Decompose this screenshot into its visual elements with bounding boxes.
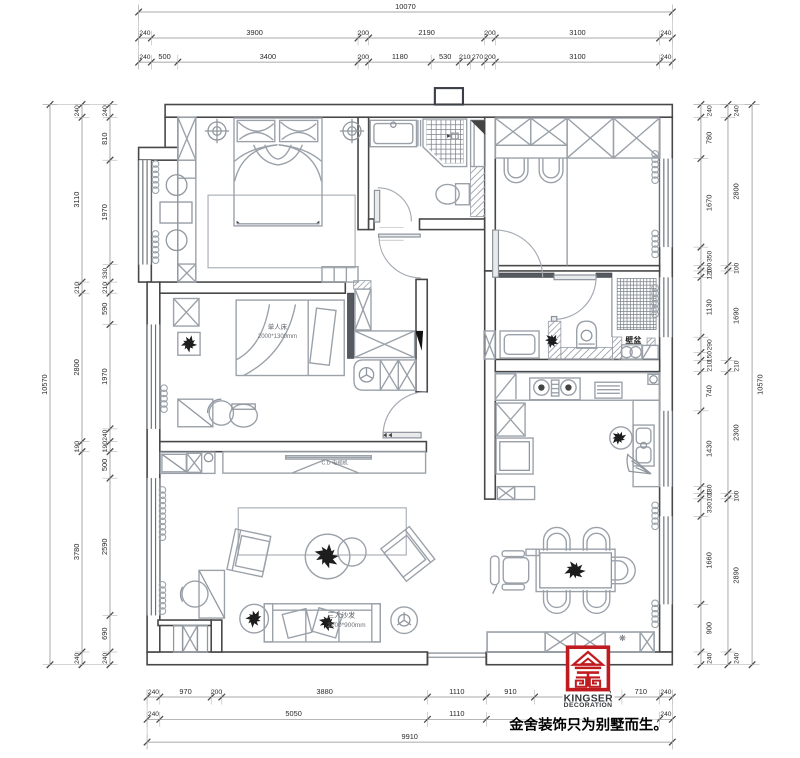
- svg-text:金舍装饰只为别墅而生。: 金舍装饰只为别墅而生。: [508, 716, 667, 734]
- svg-text:200: 200: [484, 30, 495, 37]
- svg-text:200: 200: [358, 30, 369, 37]
- svg-text:810: 810: [100, 133, 109, 145]
- svg-text:190: 190: [102, 441, 109, 452]
- svg-text:210: 210: [706, 360, 713, 371]
- svg-text:2590: 2590: [100, 539, 109, 555]
- svg-text:500: 500: [158, 52, 170, 61]
- svg-text:1670: 1670: [704, 195, 713, 211]
- svg-text:100: 100: [706, 490, 713, 501]
- svg-text:740: 740: [704, 385, 713, 397]
- svg-text:1180: 1180: [392, 52, 408, 61]
- svg-text:200: 200: [358, 54, 369, 61]
- svg-text:590: 590: [100, 303, 109, 315]
- svg-text:2890: 2890: [731, 567, 740, 583]
- svg-text:10070: 10070: [395, 2, 416, 11]
- svg-text:1430: 1430: [704, 441, 713, 457]
- svg-text:530: 530: [439, 52, 451, 61]
- svg-text:1970: 1970: [100, 204, 109, 220]
- svg-text:190: 190: [74, 441, 81, 452]
- svg-text:900: 900: [704, 622, 713, 634]
- svg-text:2200*900mm: 2200*900mm: [327, 622, 365, 629]
- svg-text:270: 270: [472, 54, 483, 61]
- svg-text:3900: 3900: [246, 28, 262, 37]
- svg-text:10570: 10570: [755, 374, 764, 395]
- svg-text:500: 500: [100, 459, 109, 471]
- svg-text:9910: 9910: [401, 732, 417, 741]
- svg-text:240: 240: [660, 54, 671, 61]
- svg-text:710: 710: [635, 687, 647, 696]
- svg-text:1690: 1690: [731, 307, 740, 323]
- svg-text:DECORATION: DECORATION: [564, 702, 613, 709]
- svg-text:’: ’: [609, 690, 611, 699]
- svg-text:240: 240: [102, 653, 109, 664]
- svg-text:3100: 3100: [569, 28, 585, 37]
- svg-text:210: 210: [459, 54, 470, 61]
- svg-text:3780: 3780: [72, 544, 81, 560]
- svg-text:330: 330: [102, 267, 109, 278]
- svg-text:290: 290: [706, 339, 713, 350]
- svg-text:3880: 3880: [316, 687, 332, 696]
- svg-text:120: 120: [706, 268, 713, 279]
- svg-text:330: 330: [706, 502, 713, 513]
- svg-text:240: 240: [706, 653, 713, 664]
- svg-text:240: 240: [102, 429, 109, 440]
- svg-text:240: 240: [706, 105, 713, 116]
- svg-text:1110: 1110: [449, 709, 464, 718]
- svg-text:壁盆: 壁盆: [625, 335, 641, 345]
- svg-text:240: 240: [139, 54, 150, 61]
- svg-text:200: 200: [484, 54, 495, 61]
- svg-text:240: 240: [660, 689, 671, 696]
- svg-text:970: 970: [179, 687, 191, 696]
- svg-text:240: 240: [139, 30, 150, 37]
- svg-text:2800: 2800: [72, 359, 81, 375]
- svg-text:240: 240: [74, 105, 81, 116]
- svg-text:240: 240: [660, 30, 671, 37]
- svg-text:240: 240: [660, 711, 671, 718]
- svg-text:100: 100: [733, 262, 740, 273]
- svg-text:3110: 3110: [72, 192, 81, 208]
- svg-text:240: 240: [148, 711, 159, 718]
- svg-text:690: 690: [100, 628, 109, 640]
- svg-text:240: 240: [148, 689, 159, 696]
- svg-text:2190: 2190: [418, 28, 434, 37]
- svg-text:240: 240: [102, 105, 109, 116]
- svg-text:150: 150: [706, 351, 713, 362]
- svg-text:2800: 2800: [731, 183, 740, 199]
- svg-text:780: 780: [704, 132, 713, 144]
- svg-text:210: 210: [102, 282, 109, 293]
- svg-text:240: 240: [733, 105, 740, 116]
- svg-text:10570: 10570: [40, 374, 49, 395]
- svg-text:2300: 2300: [731, 424, 740, 440]
- svg-text:2000*1300mm: 2000*1300mm: [258, 334, 297, 340]
- svg-text:100: 100: [733, 490, 740, 501]
- svg-text:210: 210: [74, 282, 81, 293]
- svg-text:200: 200: [211, 689, 222, 696]
- svg-text:240: 240: [74, 653, 81, 664]
- svg-text:910: 910: [504, 687, 516, 696]
- svg-text:350: 350: [706, 251, 713, 262]
- svg-text:1660: 1660: [704, 552, 713, 568]
- svg-text:210: 210: [733, 360, 740, 371]
- svg-text:3100: 3100: [569, 52, 585, 61]
- svg-text:1970: 1970: [100, 368, 109, 384]
- svg-text:❋: ❋: [619, 633, 626, 643]
- svg-text:5050: 5050: [285, 709, 301, 718]
- svg-text:1110: 1110: [449, 687, 464, 696]
- svg-text:240: 240: [733, 653, 740, 664]
- svg-text:3400: 3400: [260, 52, 276, 61]
- svg-text:1130: 1130: [704, 299, 713, 315]
